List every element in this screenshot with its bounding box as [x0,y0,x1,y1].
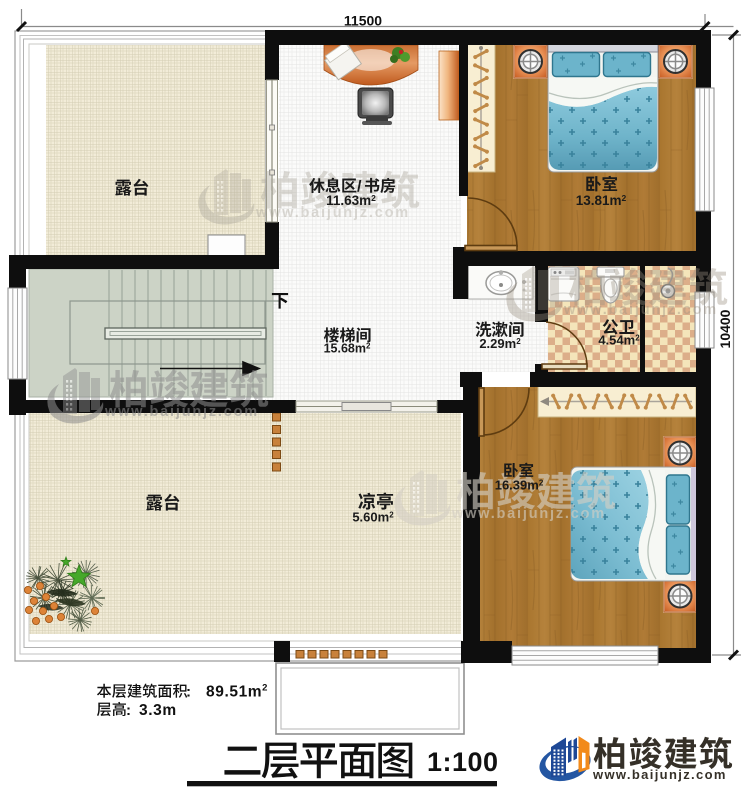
svg-text:3.3m: 3.3m [139,702,177,719]
svg-text:1:100: 1:100 [427,747,499,777]
svg-text:2.29m2: 2.29m2 [479,336,521,351]
svg-text:4.54m2: 4.54m2 [598,333,640,348]
svg-text:10400: 10400 [717,309,733,348]
svg-text:www.baijunjz.com: www.baijunjz.com [592,767,727,782]
svg-text::: : [186,684,191,701]
svg-text:11500: 11500 [344,13,382,29]
svg-text:89.51m2: 89.51m2 [206,683,268,701]
svg-text:5.60m2: 5.60m2 [352,510,394,525]
svg-text:13.81m2: 13.81m2 [576,193,627,208]
svg-text:11.63m2: 11.63m2 [326,193,376,208]
svg-text::: : [126,702,131,719]
svg-text:16.39m2: 16.39m2 [495,478,544,493]
svg-text:15.68m2: 15.68m2 [324,342,371,356]
